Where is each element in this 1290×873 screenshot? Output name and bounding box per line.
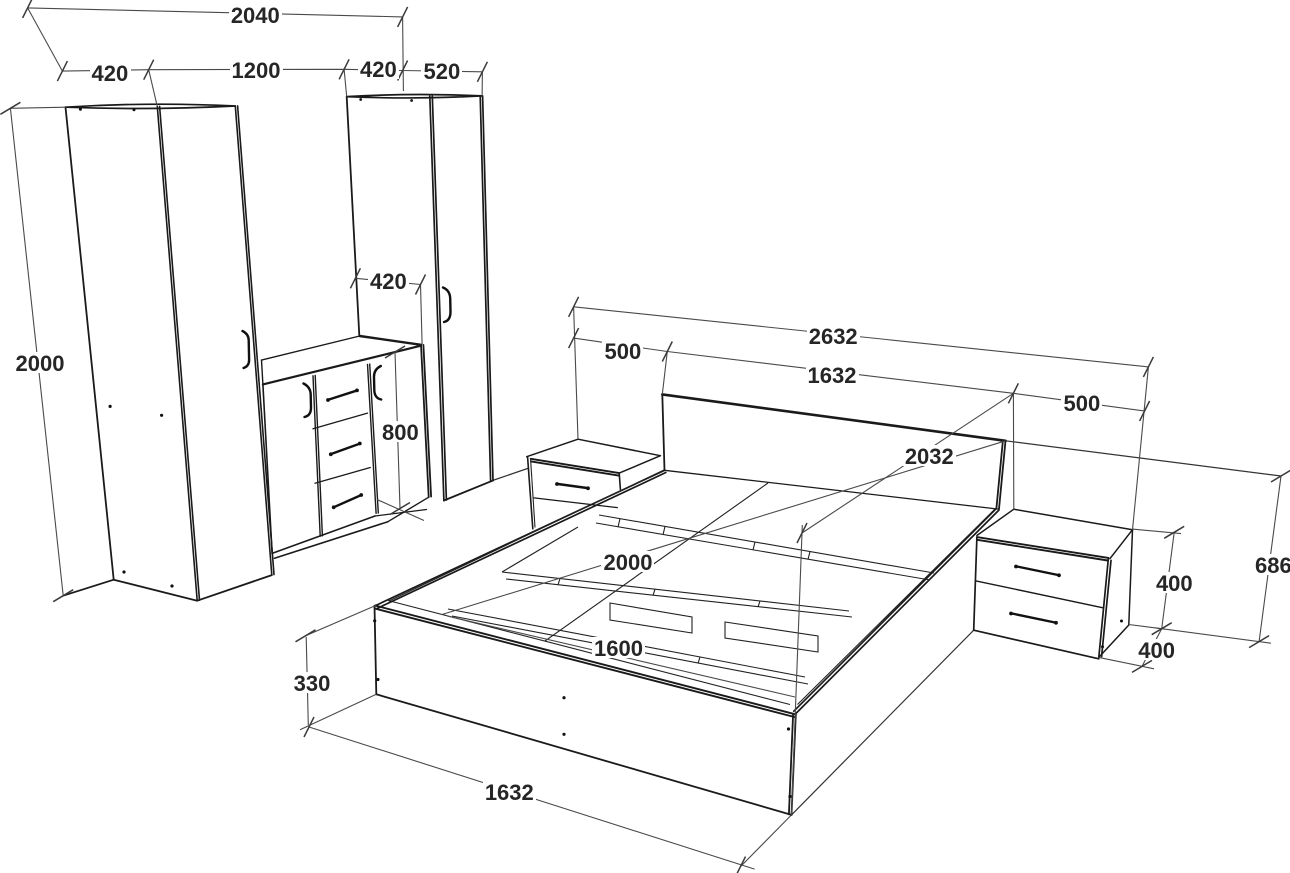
- svg-text:1600: 1600: [594, 636, 643, 661]
- svg-text:1200: 1200: [232, 58, 281, 83]
- svg-text:800: 800: [382, 420, 419, 445]
- svg-text:420: 420: [370, 269, 407, 294]
- svg-text:2000: 2000: [16, 351, 65, 376]
- svg-text:420: 420: [92, 61, 129, 86]
- svg-text:400: 400: [1138, 638, 1175, 663]
- svg-text:2632: 2632: [809, 324, 858, 349]
- svg-text:400: 400: [1156, 571, 1193, 596]
- svg-text:520: 520: [424, 59, 461, 84]
- svg-text:420: 420: [360, 57, 397, 82]
- svg-text:2032: 2032: [905, 444, 954, 469]
- svg-text:686: 686: [1255, 553, 1290, 578]
- svg-text:2000: 2000: [604, 550, 653, 575]
- svg-text:330: 330: [294, 671, 331, 696]
- svg-text:500: 500: [605, 339, 642, 364]
- svg-text:1632: 1632: [808, 363, 857, 388]
- svg-text:1632: 1632: [485, 780, 534, 805]
- svg-text:2040: 2040: [231, 3, 280, 28]
- svg-text:500: 500: [1064, 391, 1101, 416]
